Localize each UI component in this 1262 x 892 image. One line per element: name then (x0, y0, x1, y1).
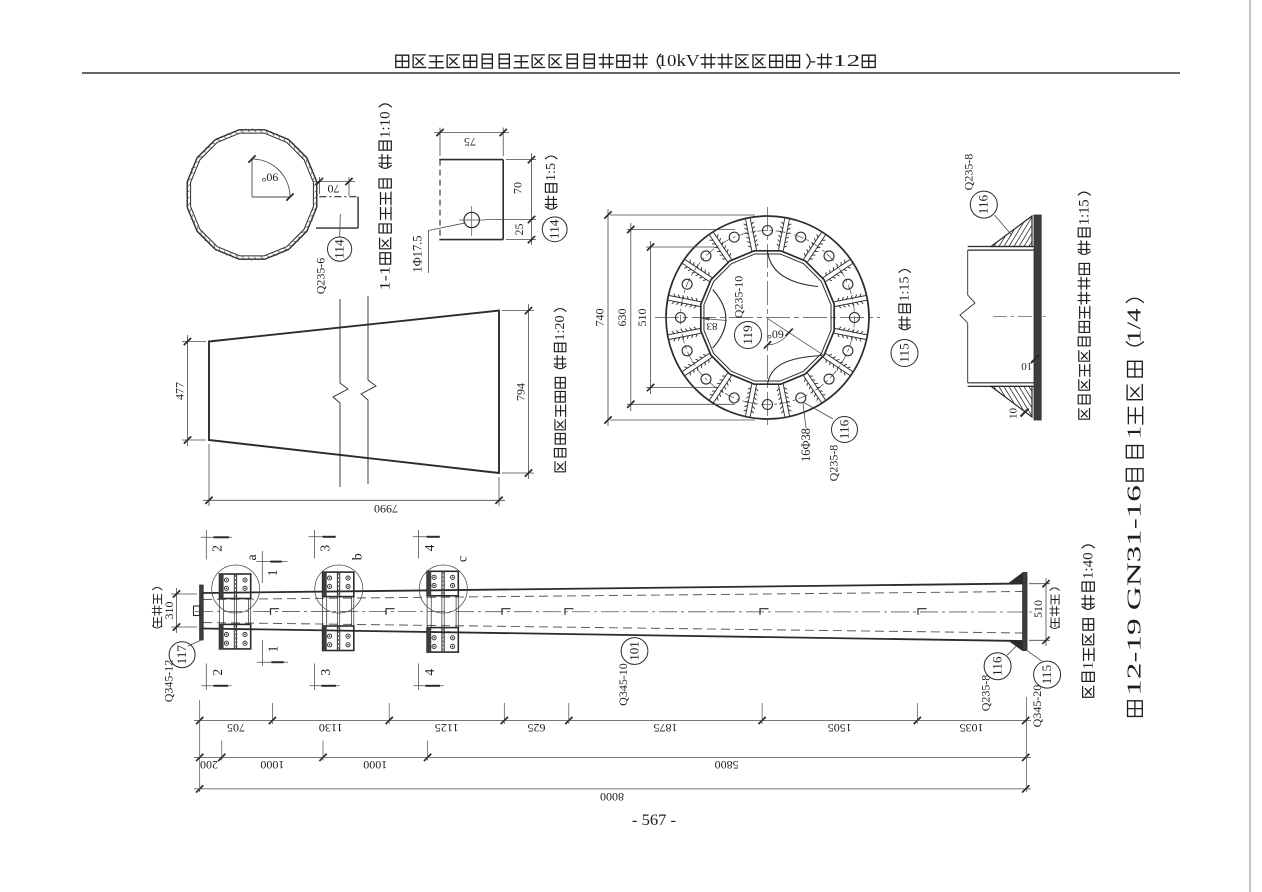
svg-text:1875: 1875 (654, 721, 678, 735)
svg-text:116: 116 (989, 656, 1004, 676)
svg-text:1: 1 (1124, 426, 1146, 439)
svg-text:1Φ17.5: 1Φ17.5 (410, 236, 424, 273)
svg-text:5800: 5800 (715, 758, 739, 772)
svg-text:12: 12 (833, 51, 860, 70)
svg-text:8000: 8000 (600, 790, 624, 804)
svg-text:1:5: 1:5 (544, 163, 559, 181)
svg-text:625: 625 (528, 721, 546, 735)
svg-text:75: 75 (464, 135, 476, 149)
svg-text:b: b (351, 553, 366, 560)
svg-text:1:40: 1:40 (1081, 552, 1097, 579)
svg-text:1:15: 1:15 (1076, 199, 1092, 225)
svg-text:115: 115 (1039, 665, 1054, 685)
svg-text:114: 114 (332, 239, 347, 259)
svg-text:1130: 1130 (319, 721, 343, 735)
svg-text:16Φ38: 16Φ38 (799, 428, 813, 462)
svg-text:Q345-10: Q345-10 (616, 663, 630, 706)
svg-text:-: - (810, 51, 816, 70)
svg-text:1505: 1505 (828, 721, 852, 735)
svg-text:70: 70 (328, 182, 340, 196)
svg-text:1:20: 1:20 (553, 316, 568, 341)
svg-text:70: 70 (511, 182, 525, 194)
svg-text:116: 116 (976, 194, 991, 214)
svg-text:Q235-8: Q235-8 (979, 675, 993, 712)
svg-text:740: 740 (593, 309, 607, 327)
svg-text:114: 114 (547, 219, 562, 239)
svg-text:4: 4 (422, 544, 437, 551)
svg-text:117: 117 (174, 644, 189, 664)
svg-text:1125: 1125 (435, 721, 459, 735)
svg-text:1: 1 (265, 646, 280, 653)
svg-text:200: 200 (200, 758, 218, 772)
svg-text:101: 101 (626, 641, 641, 661)
svg-text:1: 1 (1081, 662, 1097, 670)
svg-text:1/4: 1/4 (1124, 308, 1146, 342)
svg-text:c: c (456, 556, 471, 562)
svg-text:Q345-12: Q345-12 (162, 660, 176, 703)
svg-text:60°: 60° (767, 327, 784, 341)
svg-text:1:10: 1:10 (378, 111, 394, 138)
svg-text:83: 83 (706, 320, 718, 332)
svg-text:10: 10 (1007, 408, 1019, 420)
svg-text:- 567 -: - 567 - (632, 812, 676, 829)
svg-text:310: 310 (162, 602, 176, 620)
svg-text:3: 3 (318, 669, 333, 676)
svg-text:477: 477 (173, 382, 187, 400)
svg-text:7990: 7990 (374, 502, 398, 516)
svg-text:630: 630 (615, 309, 629, 327)
svg-text:1: 1 (265, 570, 280, 577)
svg-text:25: 25 (512, 224, 526, 236)
svg-text:510: 510 (1031, 600, 1045, 618)
svg-text:1000: 1000 (260, 758, 284, 772)
svg-text:10: 10 (1021, 360, 1033, 372)
svg-text:90°: 90° (261, 170, 278, 184)
svg-text:119: 119 (740, 325, 755, 345)
svg-text:2: 2 (210, 545, 225, 552)
svg-text:1:15: 1:15 (898, 277, 913, 302)
svg-text:Q345-20: Q345-20 (1030, 685, 1044, 728)
svg-text:1000: 1000 (363, 758, 387, 772)
svg-text:Q235-6: Q235-6 (314, 258, 328, 295)
svg-text:Q235-10: Q235-10 (732, 276, 746, 319)
svg-text:3: 3 (318, 545, 333, 552)
svg-text:4: 4 (422, 669, 437, 676)
svg-text:794: 794 (514, 383, 528, 401)
svg-text:a: a (245, 554, 260, 561)
svg-text:115: 115 (896, 343, 911, 363)
svg-text:1035: 1035 (960, 721, 984, 735)
svg-text:510: 510 (635, 309, 649, 327)
svg-text:10kV: 10kV (658, 51, 701, 70)
svg-text:116: 116 (836, 419, 851, 439)
svg-text:12-19 GN31-16: 12-19 GN31-16 (1124, 485, 1146, 696)
svg-text:Q235-8: Q235-8 (827, 445, 841, 482)
svg-text:1-1: 1-1 (378, 266, 394, 290)
svg-text:2: 2 (210, 669, 225, 676)
svg-text:705: 705 (227, 721, 245, 735)
svg-text:Q235-8: Q235-8 (962, 154, 976, 191)
